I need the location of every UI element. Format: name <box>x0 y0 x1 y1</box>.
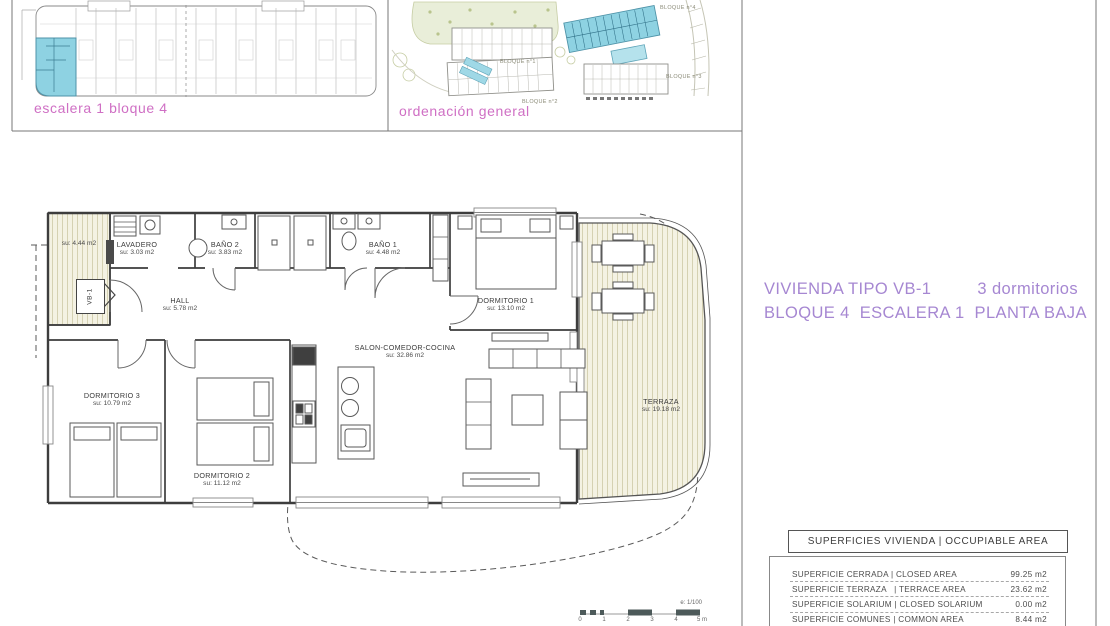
site-road <box>686 0 709 96</box>
table-row-common-area: SUPERFICIE COMUNES | COMMON AREA 8.44 m2 <box>790 613 1049 626</box>
site-building-a <box>452 28 552 60</box>
scale-tick-3: 3 <box>650 617 653 623</box>
site-plan-thumbnail <box>392 0 709 100</box>
site-label-bloque3: BLOQUE n°3 <box>666 74 702 80</box>
table-row-terrace-area: SUPERFICIE TERRAZA | TERRACE AREA 23.62 … <box>790 582 1049 597</box>
room-label-bano1: BAÑO 1 su: 4.48 m2 <box>352 240 414 258</box>
areas-table: SUPERFICIE CERRADA | CLOSED AREA 99.25 m… <box>769 556 1066 626</box>
building-strip-thumbnail <box>22 1 376 97</box>
scale-tick-2: 2 <box>626 617 629 623</box>
room-label-salon: SALON-COMEDOR-COCINA su: 32.86 m2 <box>338 343 472 361</box>
bedrooms-count: 3 dormitorios <box>977 280 1078 299</box>
title-line-2: BLOQUE 4 ESCALERA 1 PLANTA BAJA <box>764 304 1078 323</box>
plan-sheet: escalera 1 bloque 4 ordenación general B… <box>0 0 1110 626</box>
scale-ratio-label: e: 1/100 <box>640 600 702 606</box>
room-label-hall: HALL su: 5.78 m2 <box>148 296 212 314</box>
dwelling-type-title: VIVIENDA TIPO VB-1 <box>764 280 931 299</box>
title-block: VIVIENDA TIPO VB-1 3 dormitorios BLOQUE … <box>764 280 1078 323</box>
scale-tick-4: 4 <box>674 617 677 623</box>
room-label-dormitorio2: DORMITORIO 2 su: 11.12 m2 <box>178 471 266 489</box>
site-highlighted-block <box>564 6 660 53</box>
room-label-dormitorio1: DORMITORIO 1 su: 13.10 m2 <box>462 296 550 314</box>
floorplan-drawing <box>31 208 710 616</box>
site-label-bloque4: BLOQUE n°4 <box>660 5 696 11</box>
room-label-dormitorio3: DORMITORIO 3 su: 10.79 m2 <box>68 391 156 409</box>
site-label-bloque1: BLOQUE n°1 <box>500 59 536 65</box>
title-line-1: VIVIENDA TIPO VB-1 3 dormitorios <box>764 280 1078 299</box>
room-label-entry-porch: su: 4.44 m2 <box>50 240 108 249</box>
scale-bar <box>580 610 700 616</box>
scale-tick-1: 1 <box>602 617 605 623</box>
scale-tick-5: 5 m <box>697 617 707 623</box>
site-label-bloque2: BLOQUE n°2 <box>522 99 558 105</box>
site-pool <box>611 45 647 65</box>
caption-escalera-bloque: escalera 1 bloque 4 <box>34 100 168 116</box>
room-label-lavadero: LAVADERO su: 3.03 m2 <box>106 240 168 258</box>
room-label-terraza: TERRAZA su: 19.18 m2 <box>618 397 704 415</box>
table-row-solarium-area: SUPERFICIE SOLARIUM | CLOSED SOLARIUM 0.… <box>790 597 1049 612</box>
scale-tick-0: 0 <box>578 617 581 623</box>
table-row-closed-area: SUPERFICIE CERRADA | CLOSED AREA 99.25 m… <box>790 567 1049 582</box>
site-building-c <box>584 64 668 100</box>
highlighted-unit <box>36 38 76 96</box>
areas-table-header: SUPERFICIES VIVIENDA | OCCUPIABLE AREA <box>788 530 1068 553</box>
unit-tag-vb1: VB-1 <box>76 279 105 314</box>
caption-ordenacion-general: ordenación general <box>399 103 530 119</box>
room-label-bano2: BAÑO 2 su: 3.83 m2 <box>196 240 254 258</box>
